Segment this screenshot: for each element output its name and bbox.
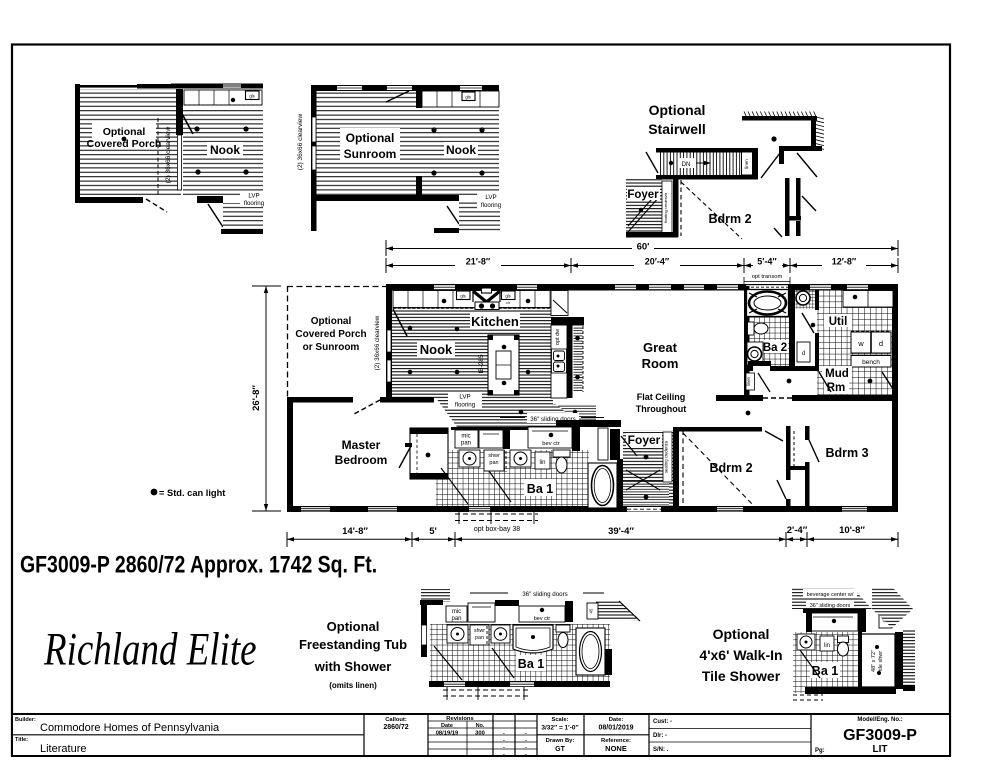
svg-text:IB-285: IB-285	[478, 354, 485, 374]
svg-text:beverage center w/: beverage center w/	[807, 592, 854, 598]
svg-text:shwr: shwr	[488, 453, 500, 459]
svg-text:DN: DN	[682, 162, 691, 168]
svg-text:tile shwr: tile shwr	[878, 651, 884, 671]
svg-text:= Std. can light: = Std. can light	[159, 488, 225, 498]
svg-text:seating credenza: seating credenza	[664, 440, 669, 473]
svg-text:36″ sliding doors: 36″ sliding doors	[810, 603, 851, 609]
svg-text:Ba 1: Ba 1	[527, 482, 553, 496]
svg-text:with Shower: with Shower	[314, 659, 392, 674]
svg-text:Kitchen: Kitchen	[471, 314, 519, 329]
svg-text:Richland Elite: Richland Elite	[43, 623, 256, 675]
svg-text:Builder:: Builder:	[15, 717, 36, 723]
svg-text:Title:: Title:	[15, 737, 28, 743]
svg-text:3/32″ = 1′-0″: 3/32″ = 1′-0″	[541, 725, 578, 732]
svg-text:08/19/19: 08/19/19	[436, 731, 459, 737]
svg-text:Revisions: Revisions	[446, 716, 473, 722]
svg-text:Optional: Optional	[311, 316, 352, 327]
svg-text:Flat Ceiling: Flat Ceiling	[637, 392, 686, 402]
svg-text:Ba 2: Ba 2	[763, 342, 787, 354]
svg-text:LIT: LIT	[873, 744, 888, 755]
svg-text:opt transom: opt transom	[752, 274, 783, 280]
svg-text:Scale:: Scale:	[551, 717, 568, 723]
svg-text:GF3009-P 2860/72 Approx. 1742: GF3009-P 2860/72 Approx. 1742 Sq. Ft.	[20, 550, 377, 578]
svg-text:Foyer: Foyer	[628, 433, 661, 447]
svg-text:bev ctr: bev ctr	[542, 441, 559, 447]
svg-text:26'-8″: 26'-8″	[251, 385, 262, 411]
svg-text:Bdrm 3: Bdrm 3	[825, 446, 868, 460]
svg-text:No.: No.	[476, 723, 485, 729]
svg-text:flooring: flooring	[481, 202, 502, 209]
svg-text:(2) 36x66 clearview: (2) 36x66 clearview	[165, 127, 172, 184]
svg-text:Optional: Optional	[649, 102, 706, 118]
svg-text:linen: linen	[746, 376, 751, 386]
svg-text:gls: gls	[460, 294, 465, 299]
svg-text:Master: Master	[342, 438, 381, 452]
svg-text:pan: pan	[489, 460, 498, 466]
svg-text:opt box-bay 38: opt box-bay 38	[474, 526, 520, 533]
svg-text:w: w	[857, 339, 864, 348]
svg-text:lin: lin	[539, 460, 545, 466]
svg-text:Room: Room	[642, 356, 679, 371]
svg-text:opt dw: opt dw	[555, 329, 561, 345]
svg-text:d: d	[802, 351, 805, 357]
svg-text:LVP: LVP	[459, 394, 470, 401]
svg-text:Optional: Optional	[327, 619, 380, 634]
svg-text:floating credenza: floating credenza	[663, 192, 668, 223]
svg-text:Nook: Nook	[446, 143, 476, 157]
svg-text:Tile Shower: Tile Shower	[702, 668, 781, 684]
svg-text:14'-8″: 14'-8″	[342, 526, 368, 537]
svg-text:10'-8″: 10'-8″	[839, 525, 865, 536]
svg-text:(2) 36x66 clearview: (2) 36x66 clearview	[297, 114, 304, 171]
svg-text:Foyer: Foyer	[627, 189, 659, 201]
svg-text:2860/72: 2860/72	[383, 724, 408, 731]
svg-text:or Sunroom: or Sunroom	[303, 342, 360, 353]
svg-text:Ba 1: Ba 1	[518, 657, 544, 671]
svg-text:Ba 1: Ba 1	[812, 664, 838, 678]
svg-text:Optional: Optional	[103, 126, 146, 138]
svg-text:gls: gls	[505, 294, 510, 299]
svg-text:12′-8″: 12′-8″	[832, 257, 857, 267]
svg-text:Date:: Date:	[609, 717, 624, 723]
svg-text:Freestanding Tub: Freestanding Tub	[299, 637, 407, 652]
svg-text:48″ x 72″: 48″ x 72″	[871, 650, 877, 672]
svg-text:Throughout: Throughout	[636, 404, 686, 414]
svg-text:Mud: Mud	[825, 368, 849, 380]
svg-text:Bdrm 2: Bdrm 2	[709, 461, 752, 475]
svg-text:08/01/2019: 08/01/2019	[598, 725, 633, 732]
svg-text:2'-4″: 2'-4″	[787, 525, 808, 536]
svg-text:linen: linen	[744, 159, 749, 169]
svg-text:bev ctr: bev ctr	[534, 616, 551, 622]
svg-text:LVP: LVP	[485, 194, 496, 201]
svg-text:Great: Great	[643, 340, 678, 355]
svg-text:5′-4″: 5′-4″	[757, 257, 777, 267]
svg-text:Bdrm 2: Bdrm 2	[708, 212, 751, 226]
svg-text:pan: pan	[475, 635, 484, 641]
svg-text:lin: lin	[824, 643, 830, 649]
svg-text:45: 45	[589, 608, 594, 613]
svg-text:bench: bench	[862, 359, 880, 366]
svg-text:Pg:: Pg:	[815, 748, 825, 754]
svg-text:Covered Porch: Covered Porch	[295, 329, 366, 340]
svg-text:pan: pan	[461, 441, 471, 447]
svg-text:Callout:: Callout:	[385, 717, 407, 723]
svg-text:(2) 36x66 clearview: (2) 36x66 clearview	[374, 315, 381, 370]
svg-text:flooring: flooring	[455, 402, 476, 409]
svg-text:d: d	[879, 339, 883, 348]
svg-text:GT: GT	[555, 746, 565, 753]
svg-text:pan: pan	[451, 616, 461, 622]
svg-text:Nook: Nook	[420, 342, 453, 357]
svg-text:(omits linen): (omits linen)	[329, 681, 377, 690]
svg-text:4'x6' Walk-In: 4'x6' Walk-In	[699, 647, 782, 663]
svg-text:flooring: flooring	[244, 200, 265, 207]
svg-text:Date: Date	[441, 723, 453, 729]
svg-text:Cust: -: Cust: -	[653, 719, 672, 725]
svg-text:39'-4″: 39'-4″	[608, 526, 634, 537]
svg-text:Model/Eng. No.:: Model/Eng. No.:	[857, 717, 902, 723]
svg-text:Bedroom: Bedroom	[335, 453, 388, 467]
svg-text:Literature: Literature	[40, 743, 86, 755]
svg-text:5': 5'	[429, 526, 437, 537]
svg-text:Stairwell: Stairwell	[648, 121, 706, 137]
svg-text:Optional: Optional	[713, 626, 770, 642]
svg-text:Optional: Optional	[346, 131, 395, 145]
svg-text:Util: Util	[829, 316, 848, 328]
svg-text:36″ sliding doors: 36″ sliding doors	[522, 591, 568, 598]
svg-text:S/N: .: S/N: .	[653, 747, 669, 753]
svg-text:shwr: shwr	[474, 628, 485, 634]
svg-text:60': 60'	[637, 242, 650, 253]
svg-text:Nook: Nook	[210, 143, 240, 157]
svg-text:LVP: LVP	[248, 193, 259, 200]
svg-text:gls: gls	[465, 95, 470, 100]
svg-text:mic: mic	[461, 434, 470, 440]
svg-text:21′-8″: 21′-8″	[466, 257, 491, 267]
svg-text:Sunroom: Sunroom	[344, 147, 397, 161]
svg-text:GF3009-P: GF3009-P	[843, 727, 917, 744]
svg-text:gls: gls	[249, 94, 254, 99]
svg-text:300: 300	[475, 731, 485, 737]
svg-text:Dlr: -: Dlr: -	[653, 733, 667, 739]
svg-text:20′-4″: 20′-4″	[645, 257, 670, 267]
svg-text:Commodore Homes of Pennsylvani: Commodore Homes of Pennsylvania	[40, 722, 220, 734]
svg-text:Rm: Rm	[827, 382, 846, 394]
svg-text:mic: mic	[452, 609, 461, 615]
svg-text:NONE: NONE	[605, 744, 627, 753]
svg-text:Drawn By:: Drawn By:	[546, 738, 575, 744]
